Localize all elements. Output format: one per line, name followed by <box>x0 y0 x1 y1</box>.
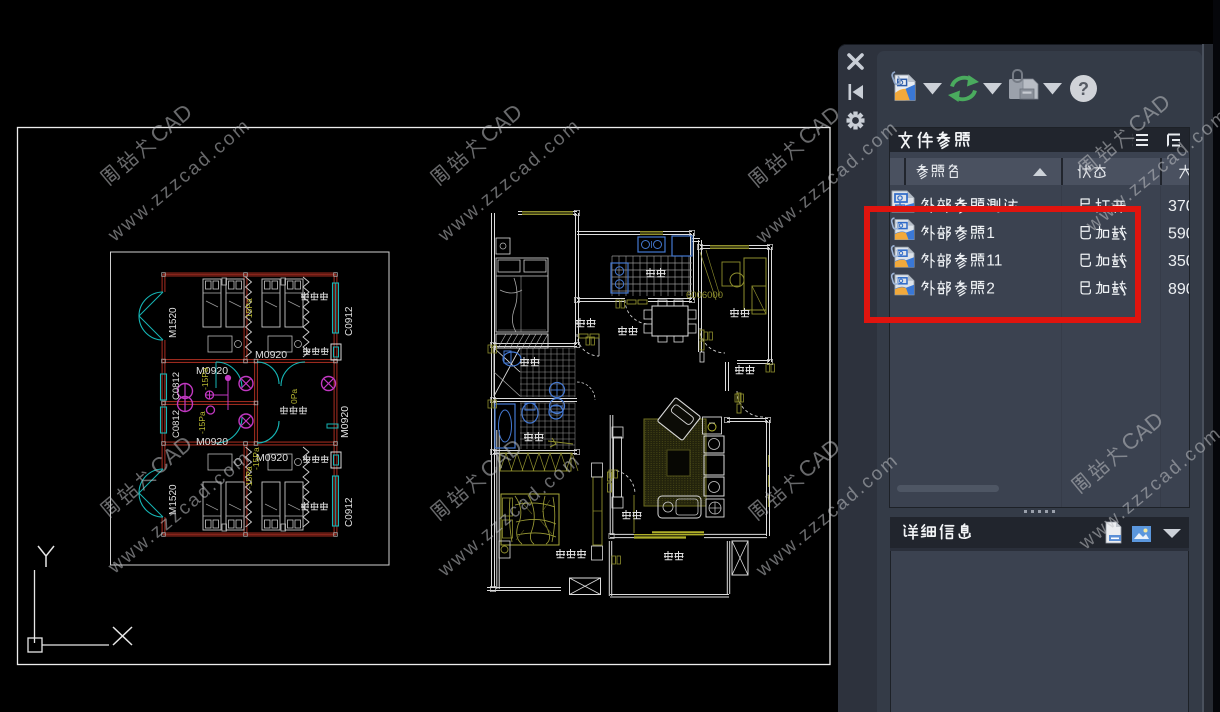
svg-text:-15Pa: -15Pa <box>197 411 207 434</box>
svg-text:M0920: M0920 <box>339 406 351 438</box>
svg-text:C0812: C0812 <box>171 410 182 438</box>
svg-text:C0912: C0912 <box>344 497 355 527</box>
svg-text:C0812: C0812 <box>171 372 182 400</box>
svg-text:M0920: M0920 <box>255 349 287 361</box>
svg-text:590: 590 <box>1168 226 1189 243</box>
svg-text:-15Pa: -15Pa <box>251 447 261 470</box>
svg-text:6006000: 6006000 <box>686 290 723 301</box>
svg-text:M1520: M1520 <box>168 484 179 515</box>
svg-text:-15Pa: -15Pa <box>244 298 254 321</box>
svg-text:350: 350 <box>1168 253 1189 270</box>
svg-text:C0912: C0912 <box>344 306 355 336</box>
svg-text:890: 890 <box>1168 281 1189 298</box>
svg-text:-15Pa: -15Pa <box>200 367 210 390</box>
svg-text:M0920: M0920 <box>196 436 228 448</box>
svg-text:0Pa: 0Pa <box>289 389 299 404</box>
svg-text:M1520: M1520 <box>168 307 179 338</box>
svg-text:?: ? <box>1078 79 1089 99</box>
svg-text:370: 370 <box>1168 198 1189 215</box>
